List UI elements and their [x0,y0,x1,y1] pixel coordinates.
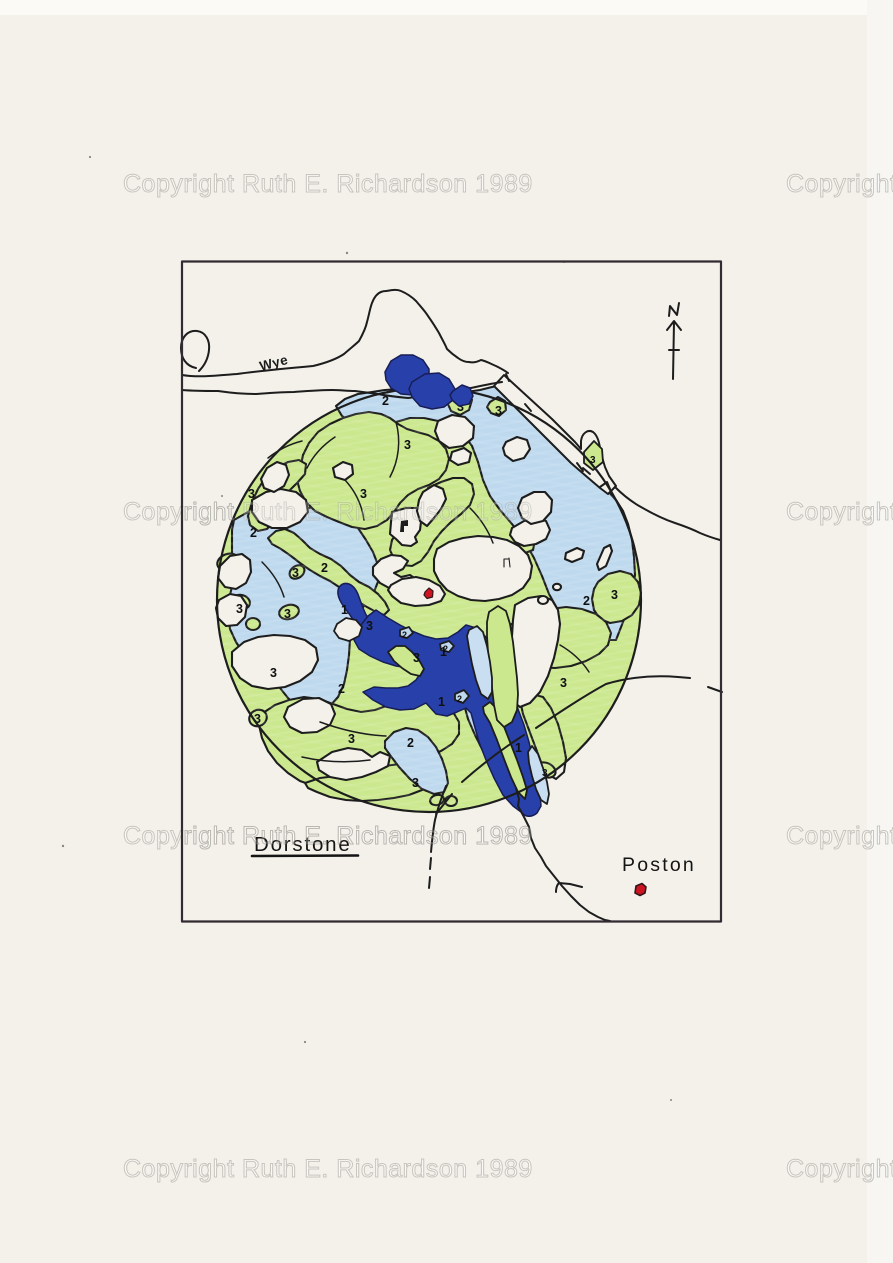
svg-text:3: 3 [270,666,277,680]
svg-text:1: 1 [438,695,445,709]
svg-text:2: 2 [407,736,414,750]
svg-text:1: 1 [515,741,522,755]
svg-text:3: 3 [236,602,243,616]
svg-text:2: 2 [338,682,345,696]
svg-text:2: 2 [583,594,590,608]
svg-text:2: 2 [321,561,328,575]
svg-text:1: 1 [341,603,348,617]
svg-text:2: 2 [443,644,448,654]
svg-text:3: 3 [611,588,618,602]
svg-text:3: 3 [560,676,567,690]
svg-text:3: 3 [284,607,291,621]
svg-text:3: 3 [348,732,355,746]
svg-text:3: 3 [292,566,299,580]
svg-text:Wye: Wye [258,352,290,374]
svg-text:2: 2 [402,630,407,640]
svg-text:3: 3 [413,651,420,665]
svg-text:3: 3 [366,619,373,633]
svg-text:2: 2 [457,694,462,704]
svg-text:3: 3 [404,438,411,452]
svg-text:3: 3 [495,404,502,418]
svg-text:3: 3 [412,776,419,790]
